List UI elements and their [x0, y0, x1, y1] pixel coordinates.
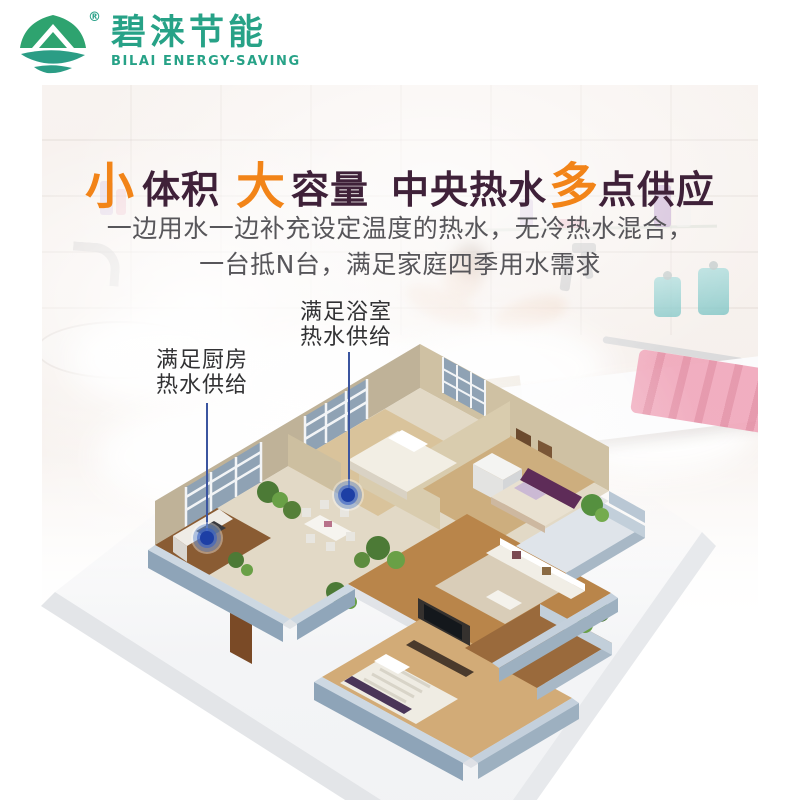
headline-accent: 大	[236, 147, 285, 218]
subtitle: 一边用水一边补充设定温度的热水，无冷热水混合， 一台抵N台，满足家庭四季用水需求	[0, 211, 800, 283]
callout-bathroom-line-2: 热水供给	[300, 325, 392, 350]
callout-kitchen-line-2: 热水供给	[156, 373, 248, 398]
callout-leader-line-kitchen	[206, 403, 208, 535]
hot-water-marker-kitchen	[193, 524, 221, 552]
subtitle-line-1: 一边用水一边补充设定温度的热水，无冷热水混合，	[0, 211, 800, 247]
callout-bathroom: 满足浴室 热水供给	[300, 300, 392, 350]
callout-kitchen: 满足厨房 热水供给	[156, 348, 248, 398]
headline-accent: 小	[85, 147, 134, 218]
callout-bathroom-line-1: 满足浴室	[300, 300, 392, 325]
headline-text: 中央热水	[391, 159, 547, 214]
callout-kitchen-line-1: 满足厨房	[156, 348, 248, 373]
registered-mark: ®	[88, 10, 101, 25]
headline-text: 容量	[291, 159, 369, 214]
bilai-logo-icon	[14, 8, 92, 74]
brand-name-en: BILAI ENERGY-SAVING	[111, 54, 301, 69]
hot-water-marker-bathroom	[334, 481, 362, 509]
brand-name-cn: 碧涞节能	[111, 14, 301, 52]
callout-leader-line-bathroom	[348, 352, 350, 492]
promo-poster: ® 碧涞节能 BILAI ENERGY-SAVING 小 体积 大 容量 中央热…	[0, 0, 800, 800]
headline: 小 体积 大 容量 中央热水 多 点供应	[0, 147, 800, 218]
floorplan-3d-illustration	[0, 0, 800, 800]
headline-accent: 多	[549, 147, 598, 218]
subtitle-line-2: 一台抵N台，满足家庭四季用水需求	[0, 247, 800, 283]
headline-text: 体积	[142, 159, 220, 214]
brand-logo: ® 碧涞节能 BILAI ENERGY-SAVING	[14, 8, 301, 74]
headline-text: 点供应	[598, 159, 715, 214]
